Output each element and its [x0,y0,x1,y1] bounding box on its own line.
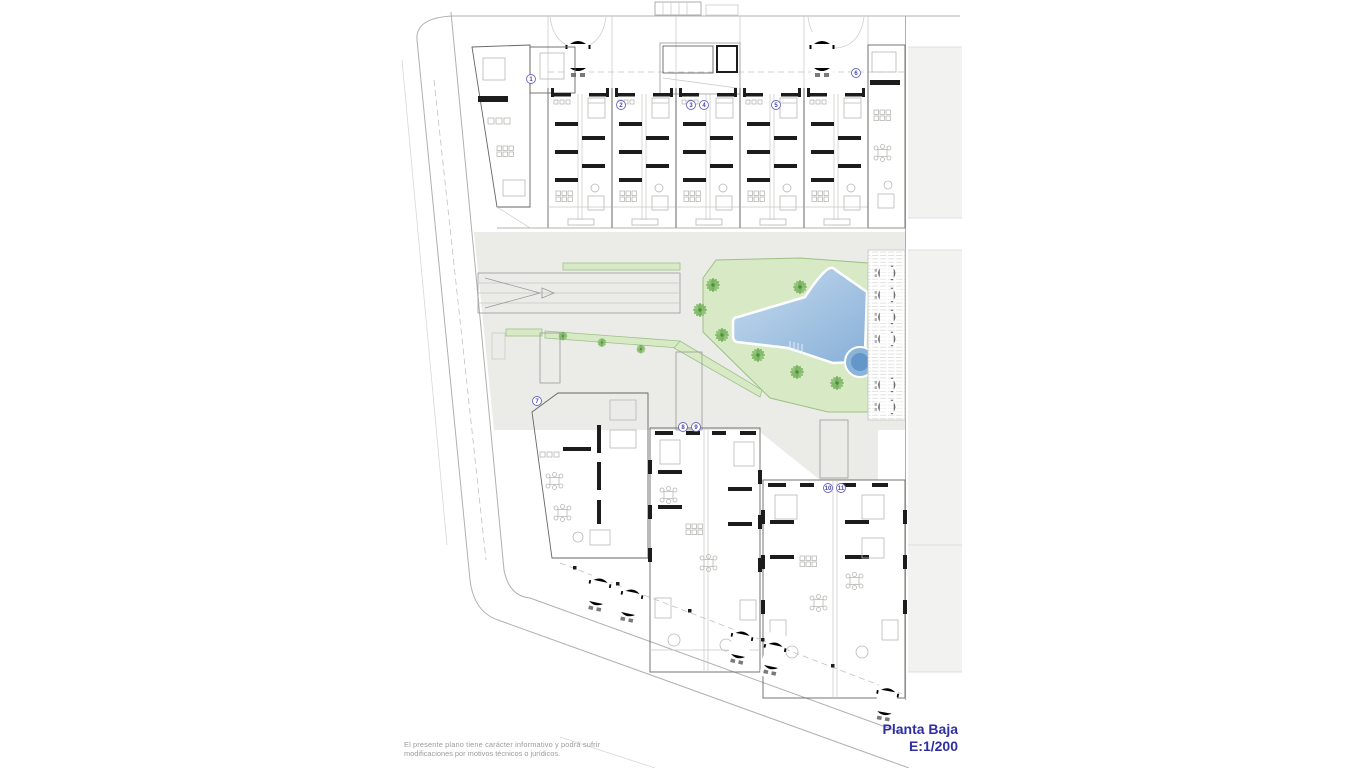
car-icon [872,332,902,347]
unit-number-badge: 2 [617,101,626,110]
car-icon [872,288,902,303]
car-icon [566,29,591,81]
unit-number-badge: 3 [687,101,696,110]
parking-strip [868,250,905,420]
svg-text:11: 11 [838,486,845,492]
car-icon [872,310,902,325]
unit-number-badge: 4 [700,101,709,110]
car-icon [872,266,902,281]
adjacent-plots [908,47,962,672]
car-icon [872,378,902,393]
unit-number-badge: 5 [772,101,781,110]
unit-number-badge: 9 [692,423,701,432]
plan-title: Planta Baja [883,721,959,737]
disclaimer-line2: modificaciones por motivos técnicos o ju… [404,749,560,758]
adjacent-plot [908,250,962,672]
site-plan-svg: 1 2 3 4 5 6 7 8 9 10 11 Planta Baja E:1/… [0,0,1366,768]
unit-number-badge: 1 [527,75,536,84]
car-icon [810,29,835,81]
unit-number-badge: 10 [824,484,833,493]
unit-number-badge: 7 [533,397,542,406]
unit-number-badge: 6 [852,69,861,78]
unit-number-badge: 11 [837,484,846,493]
adjacent-plot [908,47,962,218]
green-strip [563,263,680,270]
floor-plan-canvas: 1 2 3 4 5 6 7 8 9 10 11 Planta Baja E:1/… [0,0,1366,768]
disclaimer-line1: El presente plano tiene carácter informa… [404,740,601,749]
plan-scale: E:1/200 [909,738,958,754]
unit-number-badge: 8 [679,423,688,432]
svg-text:10: 10 [825,486,832,492]
car-icon [872,400,902,415]
green-strip [506,329,542,336]
